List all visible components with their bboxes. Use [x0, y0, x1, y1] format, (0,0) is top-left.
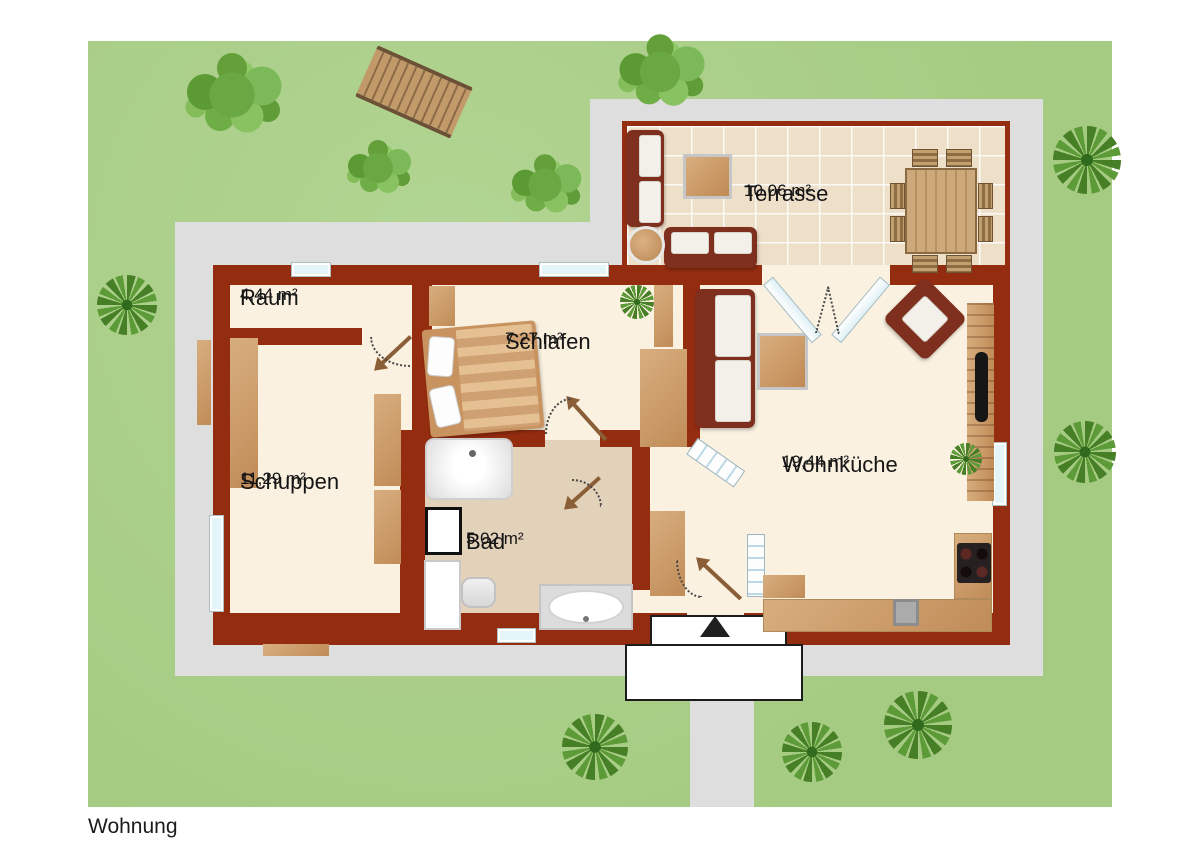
sofa	[695, 289, 755, 428]
palm-tree-icon	[884, 691, 952, 759]
shower-tray	[425, 438, 513, 500]
pillow	[428, 384, 462, 429]
palm-tree-icon	[1053, 126, 1121, 194]
bush-icon	[363, 153, 393, 183]
wall-interior	[400, 430, 425, 632]
chair	[978, 183, 993, 209]
drain	[469, 450, 476, 457]
dining-table	[905, 168, 977, 254]
shelf	[374, 394, 401, 486]
chair	[912, 149, 938, 167]
wall-top	[213, 265, 1010, 285]
houseplant-icon	[620, 285, 654, 319]
chair	[978, 216, 993, 242]
coffee-table	[757, 333, 808, 390]
room-area: 10,06 m²	[744, 181, 811, 201]
palm-tree-icon	[1054, 421, 1116, 483]
room-area: 19,44 m²	[782, 452, 849, 472]
wardrobe	[640, 349, 687, 447]
walkway	[175, 222, 622, 267]
window	[292, 263, 330, 276]
terrace-side-table	[627, 226, 665, 264]
bathtub	[539, 584, 633, 630]
palm-tree-icon	[97, 275, 157, 335]
tv	[975, 352, 988, 422]
kitchen-counter	[763, 599, 992, 632]
outside-step	[197, 340, 211, 425]
drain	[583, 616, 589, 622]
floor-plan: Terrasse 10,06 m² Raum 4,44 m² Schlafen …	[0, 0, 1200, 848]
terrace-table	[683, 154, 732, 199]
wall-interior	[632, 447, 650, 590]
shelf	[230, 338, 258, 488]
window	[993, 443, 1006, 505]
cabinet	[763, 575, 805, 598]
nightstand	[429, 286, 455, 326]
toilet	[461, 577, 496, 608]
walkway	[590, 99, 1043, 121]
room-area: 11,29 m²	[240, 469, 306, 489]
terrace-door-opening	[762, 265, 890, 285]
chair	[890, 183, 905, 209]
houseplant-icon	[950, 443, 982, 475]
entrance-step	[625, 644, 803, 701]
washbasin	[425, 507, 462, 555]
room-area: 4,44 m²	[240, 285, 298, 305]
bush-icon	[529, 169, 562, 202]
room-area: 5,02 m²	[466, 529, 524, 549]
pillow	[427, 336, 456, 378]
window	[498, 629, 535, 642]
bush-icon	[210, 73, 255, 118]
window	[210, 516, 223, 611]
terrace-sofa	[626, 130, 664, 227]
plan-title: Wohnung	[88, 815, 178, 839]
chair	[946, 255, 972, 273]
palm-tree-icon	[562, 714, 628, 780]
chair	[946, 149, 972, 167]
chair	[890, 216, 905, 242]
walkway	[1010, 99, 1043, 676]
bush-icon	[640, 52, 681, 93]
stove	[957, 543, 991, 583]
entrance-arrow-icon	[700, 616, 730, 637]
washing-machine	[424, 560, 461, 630]
room-area: 7,27 m²	[505, 329, 563, 349]
outside-step	[263, 644, 329, 656]
wardrobe	[654, 285, 673, 347]
window	[540, 263, 608, 276]
walkway	[175, 222, 213, 676]
chair	[912, 255, 938, 273]
sofa-cushion	[714, 232, 752, 254]
palm-tree-icon	[782, 722, 842, 782]
sofa-cushion	[715, 360, 751, 422]
sofa-cushion	[639, 181, 661, 223]
sofa-cushion	[671, 232, 709, 254]
cabinet	[650, 511, 685, 596]
armchair-cushion	[901, 295, 949, 343]
kitchen-sink	[893, 599, 919, 626]
sofa-cushion	[639, 135, 661, 177]
shelf	[374, 490, 401, 564]
sofa-cushion	[715, 295, 751, 357]
terrace-sofa	[664, 227, 757, 268]
